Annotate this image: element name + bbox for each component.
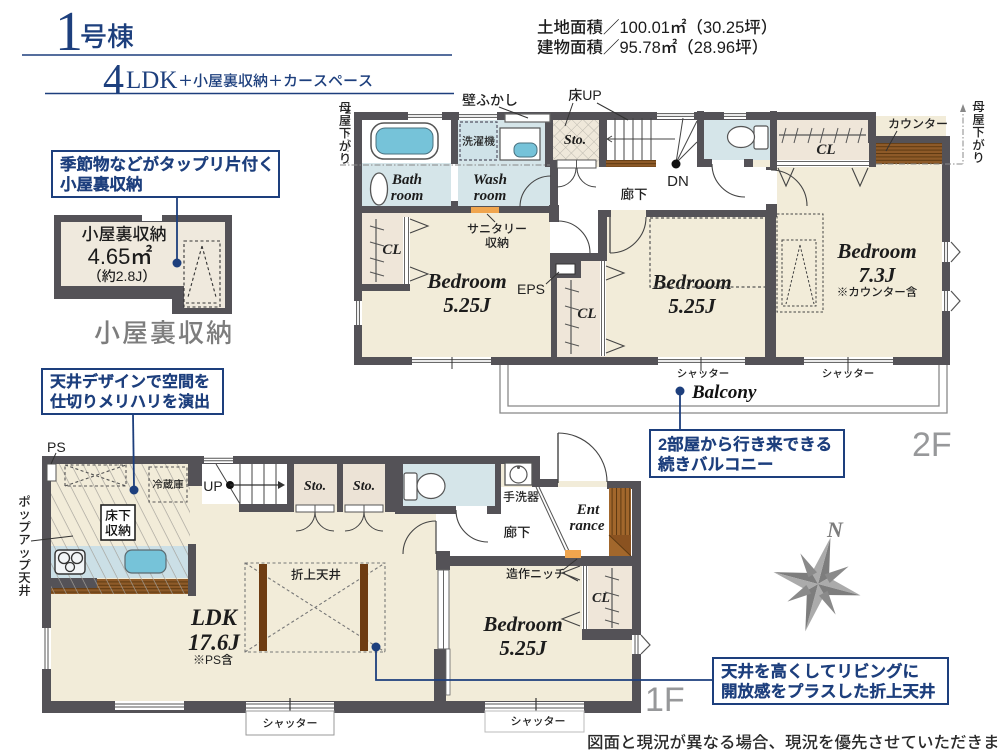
svg-text:サニタリー: サニタリー <box>467 222 527 236</box>
svg-text:シャッター: シャッター <box>822 368 875 380</box>
svg-text:rance: rance <box>570 518 605 534</box>
svg-text:床UP: 床UP <box>568 87 601 103</box>
svg-text:2F: 2F <box>912 426 952 464</box>
svg-text:Ent: Ent <box>576 502 600 518</box>
svg-text:廊下: 廊下 <box>504 525 531 540</box>
svg-text:天井を高くしてリビングに: 天井を高くしてリビングに <box>720 662 919 681</box>
svg-text:仕切りメリハリを演出: 仕切りメリハリを演出 <box>49 393 210 411</box>
svg-text:壁ふかし: 壁ふかし <box>462 92 518 108</box>
svg-text:天井デザインで空間を: 天井デザインで空間を <box>49 372 210 391</box>
svg-text:Wash: Wash <box>473 172 507 188</box>
svg-text:小屋裏収納: 小屋裏収納 <box>94 318 234 348</box>
svg-text:PS: PS <box>47 439 66 455</box>
svg-text:Sto.: Sto. <box>353 479 375 494</box>
svg-text:CL: CL <box>592 591 610 606</box>
svg-text:Balcony: Balcony <box>691 382 757 403</box>
svg-text:4: 4 <box>103 57 124 103</box>
svg-text:※PS含: ※PS含 <box>193 653 233 667</box>
svg-text:2部屋から行き来できる: 2部屋から行き来できる <box>658 435 832 454</box>
svg-text:井: 井 <box>18 584 31 598</box>
svg-text:シャッター: シャッター <box>511 715 566 728</box>
svg-text:季節物などがタップリ片付く: 季節物などがタップリ片付く <box>59 155 275 174</box>
svg-text:5.25J: 5.25J <box>499 636 548 660</box>
svg-text:小屋裏収納: 小屋裏収納 <box>59 175 143 194</box>
svg-text:5.25J: 5.25J <box>443 293 492 317</box>
svg-text:土地面積／100.01㎡（30.25坪）: 土地面積／100.01㎡（30.25坪） <box>537 18 777 37</box>
svg-text:り: り <box>339 152 352 166</box>
svg-text:建物面積／95.78㎡（28.96坪）: 建物面積／95.78㎡（28.96坪） <box>537 38 768 57</box>
svg-text:小屋裏収納: 小屋裏収納 <box>82 225 167 244</box>
svg-text:り: り <box>972 151 985 165</box>
svg-text:Bedroom: Bedroom <box>482 612 562 636</box>
svg-text:手洗器: 手洗器 <box>503 490 539 504</box>
svg-text:1: 1 <box>55 1 83 63</box>
svg-text:LDK: LDK <box>190 605 239 630</box>
svg-text:続きバルコニー: 続きバルコニー <box>657 455 774 474</box>
svg-text:Bedroom: Bedroom <box>836 239 916 263</box>
svg-text:収納: 収納 <box>105 523 131 538</box>
svg-text:Bath: Bath <box>391 172 422 188</box>
svg-text:EPS: EPS <box>517 281 545 297</box>
svg-text:カウンター: カウンター <box>888 117 948 131</box>
svg-text:1F: 1F <box>645 681 685 719</box>
svg-text:UP: UP <box>203 478 222 494</box>
svg-text:シャッター: シャッター <box>263 717 318 730</box>
svg-text:N: N <box>826 517 844 542</box>
svg-text:CL: CL <box>577 306 596 322</box>
svg-text:Sto.: Sto. <box>304 479 326 494</box>
svg-text:＋小屋裏収納＋カースペース: ＋小屋裏収納＋カースペース <box>178 73 373 90</box>
svg-text:LDK: LDK <box>126 67 177 94</box>
svg-text:room: room <box>474 188 507 204</box>
svg-text:Bedroom: Bedroom <box>651 270 731 294</box>
svg-text:DN: DN <box>667 173 689 190</box>
svg-text:room: room <box>391 188 424 204</box>
svg-text:冷蔵庫: 冷蔵庫 <box>152 479 184 491</box>
svg-text:17.6J: 17.6J <box>188 630 241 655</box>
svg-text:号棟: 号棟 <box>80 22 134 52</box>
svg-text:5.25J: 5.25J <box>668 294 717 318</box>
svg-text:造作ニッチ: 造作ニッチ <box>506 567 566 581</box>
svg-text:※カウンター含: ※カウンター含 <box>837 286 918 299</box>
svg-text:開放感をプラスした折上天井: 開放感をプラスした折上天井 <box>721 682 936 701</box>
svg-text:洗濯機: 洗濯機 <box>462 135 495 148</box>
svg-text:廊下: 廊下 <box>621 187 648 202</box>
svg-text:Sto.: Sto. <box>564 133 586 148</box>
svg-text:折上天井: 折上天井 <box>291 568 341 582</box>
svg-text:Bedroom: Bedroom <box>426 269 506 293</box>
svg-text:図面と現況が異なる場合、現況を優先させていただきます。: 図面と現況が異なる場合、現況を優先させていただきます。 <box>587 733 1000 750</box>
svg-text:（約2.8J）: （約2.8J） <box>88 268 156 284</box>
svg-text:シャッター: シャッター <box>677 368 730 380</box>
svg-text:CL: CL <box>382 242 401 258</box>
svg-text:床下: 床下 <box>105 508 131 523</box>
svg-text:CL: CL <box>816 142 835 158</box>
svg-text:収納: 収納 <box>485 236 509 250</box>
svg-text:4.65㎡: 4.65㎡ <box>88 244 153 269</box>
svg-text:7.3J: 7.3J <box>859 263 897 287</box>
